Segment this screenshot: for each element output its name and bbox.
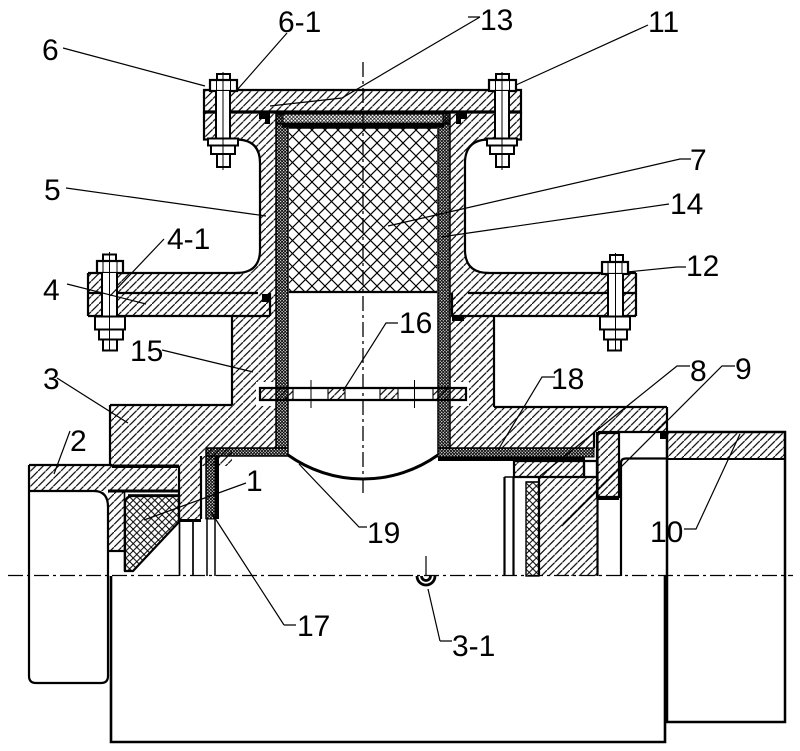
svg-text:17: 17 <box>297 610 330 643</box>
svg-text:13: 13 <box>480 4 513 37</box>
svg-text:4-1: 4-1 <box>167 223 210 256</box>
svg-text:15: 15 <box>130 335 163 368</box>
svg-text:6-1: 6-1 <box>278 6 321 39</box>
svg-text:8: 8 <box>690 355 707 388</box>
svg-text:18: 18 <box>551 363 584 396</box>
svg-text:4: 4 <box>43 274 60 307</box>
svg-text:1: 1 <box>246 465 263 498</box>
svg-text:9: 9 <box>735 353 752 386</box>
svg-text:16: 16 <box>399 307 432 340</box>
svg-text:14: 14 <box>670 188 703 221</box>
svg-text:12: 12 <box>686 250 719 283</box>
svg-text:11: 11 <box>648 6 679 39</box>
svg-text:2: 2 <box>70 425 87 458</box>
svg-text:3-1: 3-1 <box>452 630 495 663</box>
svg-text:5: 5 <box>44 174 61 207</box>
svg-text:7: 7 <box>690 144 707 177</box>
svg-text:3: 3 <box>43 363 60 396</box>
svg-text:10: 10 <box>650 516 683 549</box>
svg-text:6: 6 <box>42 34 59 67</box>
svg-text:19: 19 <box>367 517 400 550</box>
